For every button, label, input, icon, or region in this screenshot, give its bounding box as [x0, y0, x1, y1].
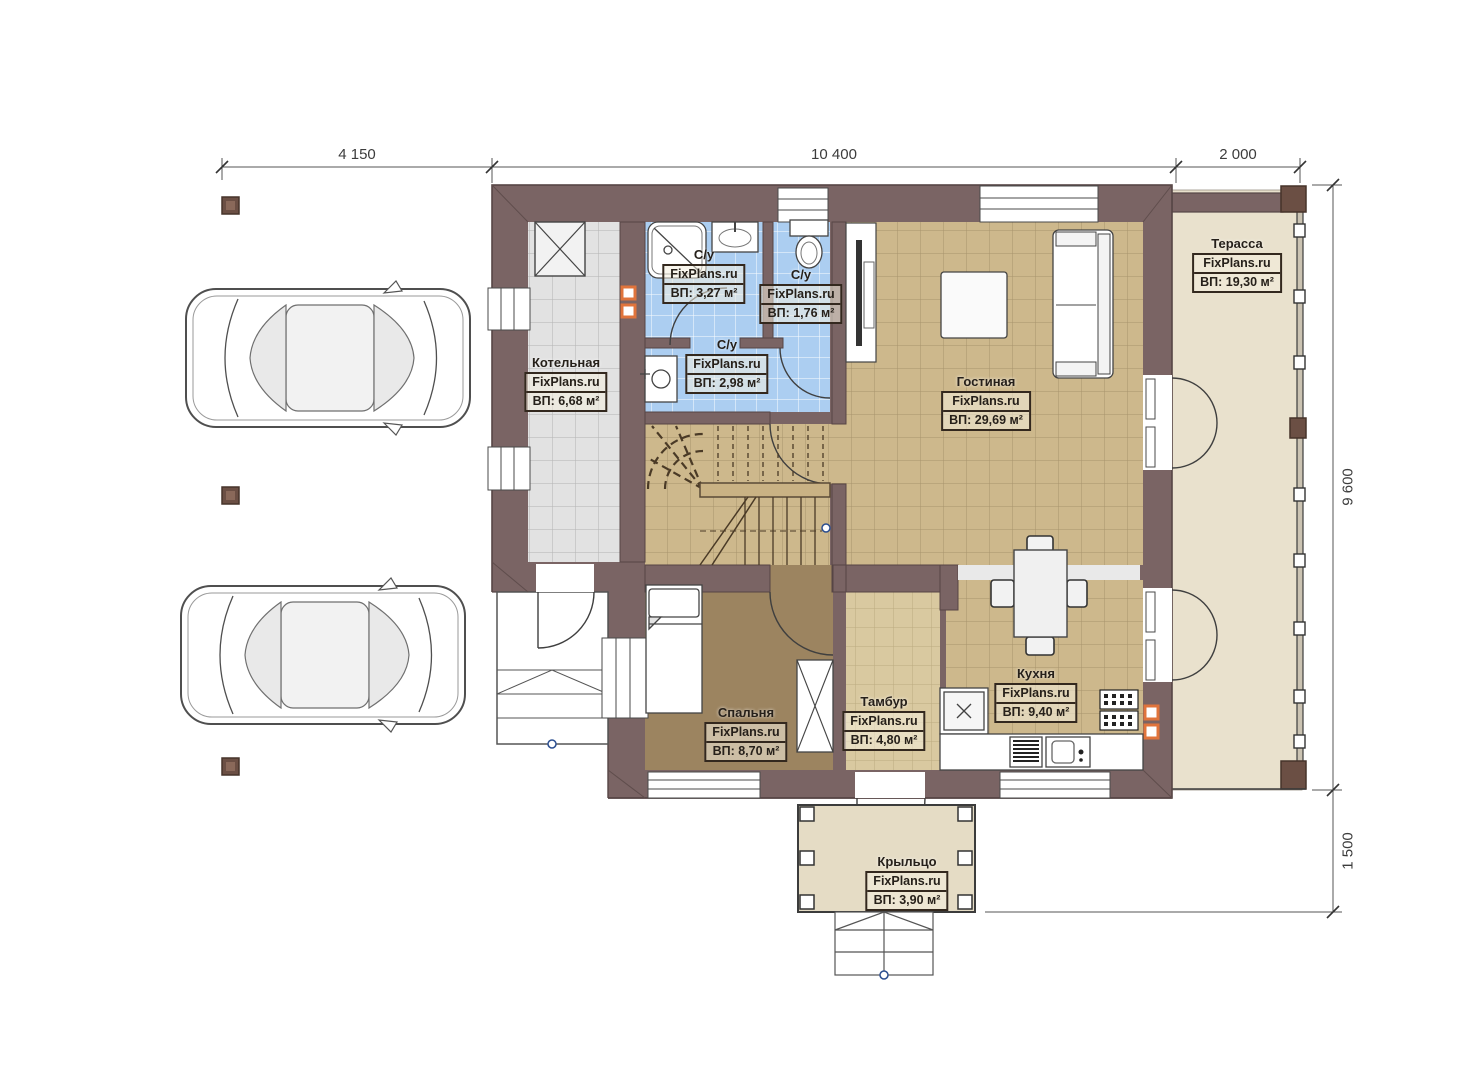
- appliance-x: [944, 692, 984, 730]
- window-bedroom-west: [602, 638, 648, 718]
- window-west-1: [488, 288, 530, 330]
- room-watermark: FixPlans.ru: [1194, 255, 1280, 274]
- floor-plan-canvas: 4 150 10 400 2 000 9 600 1 500 Терасса F…: [0, 0, 1473, 1080]
- dim-right-porch: 1 500: [1340, 832, 1357, 870]
- coffee-table: [941, 272, 1007, 338]
- room-watermark: FixPlans.ru: [996, 685, 1075, 704]
- room-area: ВП: 2,98 м²: [687, 375, 766, 392]
- dim-right-height: 9 600: [1340, 468, 1357, 506]
- room-area: ВП: 4,80 м²: [844, 732, 923, 749]
- room-area: ВП: 29,69 м²: [943, 412, 1029, 429]
- window-bedroom-south: [648, 772, 760, 798]
- room-watermark: FixPlans.ru: [761, 286, 840, 305]
- room-area: ВП: 6,68 м²: [526, 393, 605, 410]
- room-label-bath-shower: С/у FixPlans.ru ВП: 3,27 м²: [662, 248, 745, 304]
- sofa: [1053, 230, 1113, 378]
- room-name: Тамбур: [842, 695, 925, 709]
- tv-console: [846, 223, 876, 362]
- washing-machine: [640, 356, 677, 402]
- dishwasher: [1010, 737, 1042, 767]
- room-watermark: FixPlans.ru: [526, 374, 605, 393]
- window-west-2: [488, 447, 530, 490]
- room-watermark: FixPlans.ru: [687, 356, 766, 375]
- room-label-boiler: Котельная FixPlans.ru ВП: 6,68 м²: [524, 356, 607, 412]
- porch-door-opening: [855, 772, 925, 798]
- window-north-small: [778, 188, 828, 222]
- room-name: Крыльцо: [865, 855, 948, 869]
- room-area: ВП: 3,90 м²: [867, 892, 946, 909]
- side-entrance-steps: [497, 592, 608, 748]
- room-area: ВП: 1,76 м²: [761, 305, 840, 322]
- room-watermark: FixPlans.ru: [844, 713, 923, 732]
- room-name: Терасса: [1192, 237, 1282, 251]
- room-watermark: FixPlans.ru: [664, 266, 743, 285]
- wardrobe: [797, 660, 833, 752]
- room-area: ВП: 8,70 м²: [706, 743, 785, 760]
- room-watermark: FixPlans.ru: [706, 724, 785, 743]
- room-name: С/у: [662, 248, 745, 262]
- room-label-porch: Крыльцо FixPlans.ru ВП: 3,90 м²: [865, 855, 948, 911]
- dim-top-mid: 10 400: [811, 146, 857, 163]
- car-bottom: [181, 578, 465, 732]
- room-label-bath-wc: С/у FixPlans.ru ВП: 1,76 м²: [759, 268, 842, 324]
- room-watermark: FixPlans.ru: [867, 873, 946, 892]
- window-kitchen-south: [1000, 772, 1110, 798]
- porch-steps: [835, 912, 933, 979]
- room-area: ВП: 3,27 м²: [664, 285, 743, 302]
- room-label-terrace: Терасса FixPlans.ru ВП: 19,30 м²: [1192, 237, 1282, 293]
- room-name: Кухня: [994, 667, 1077, 681]
- dim-top-left: 4 150: [338, 146, 376, 163]
- window-north-large: [980, 186, 1098, 222]
- room-label-bath-lower: С/у FixPlans.ru ВП: 2,98 м²: [685, 338, 768, 394]
- kitchen-sink: [1046, 737, 1090, 767]
- room-label-living: Гостиная FixPlans.ru ВП: 29,69 м²: [941, 375, 1031, 431]
- room-label-kitchen: Кухня FixPlans.ru ВП: 9,40 м²: [994, 667, 1077, 723]
- room-name: Котельная: [524, 356, 607, 370]
- car-top: [186, 281, 470, 435]
- room-watermark: FixPlans.ru: [943, 393, 1029, 412]
- boiler-chimney: [535, 222, 585, 276]
- room-area: ВП: 19,30 м²: [1194, 274, 1280, 291]
- room-name: С/у: [685, 338, 768, 352]
- dim-top-right: 2 000: [1219, 146, 1257, 163]
- room-area: ВП: 9,40 м²: [996, 704, 1075, 721]
- bed: [646, 585, 702, 713]
- room-name: С/у: [759, 268, 842, 282]
- room-label-bedroom: Спальня FixPlans.ru ВП: 8,70 м²: [704, 706, 787, 762]
- room-label-vestibule: Тамбур FixPlans.ru ВП: 4,80 м²: [842, 695, 925, 751]
- room-name: Гостиная: [941, 375, 1031, 389]
- annex-door-opening: [536, 564, 594, 592]
- room-name: Спальня: [704, 706, 787, 720]
